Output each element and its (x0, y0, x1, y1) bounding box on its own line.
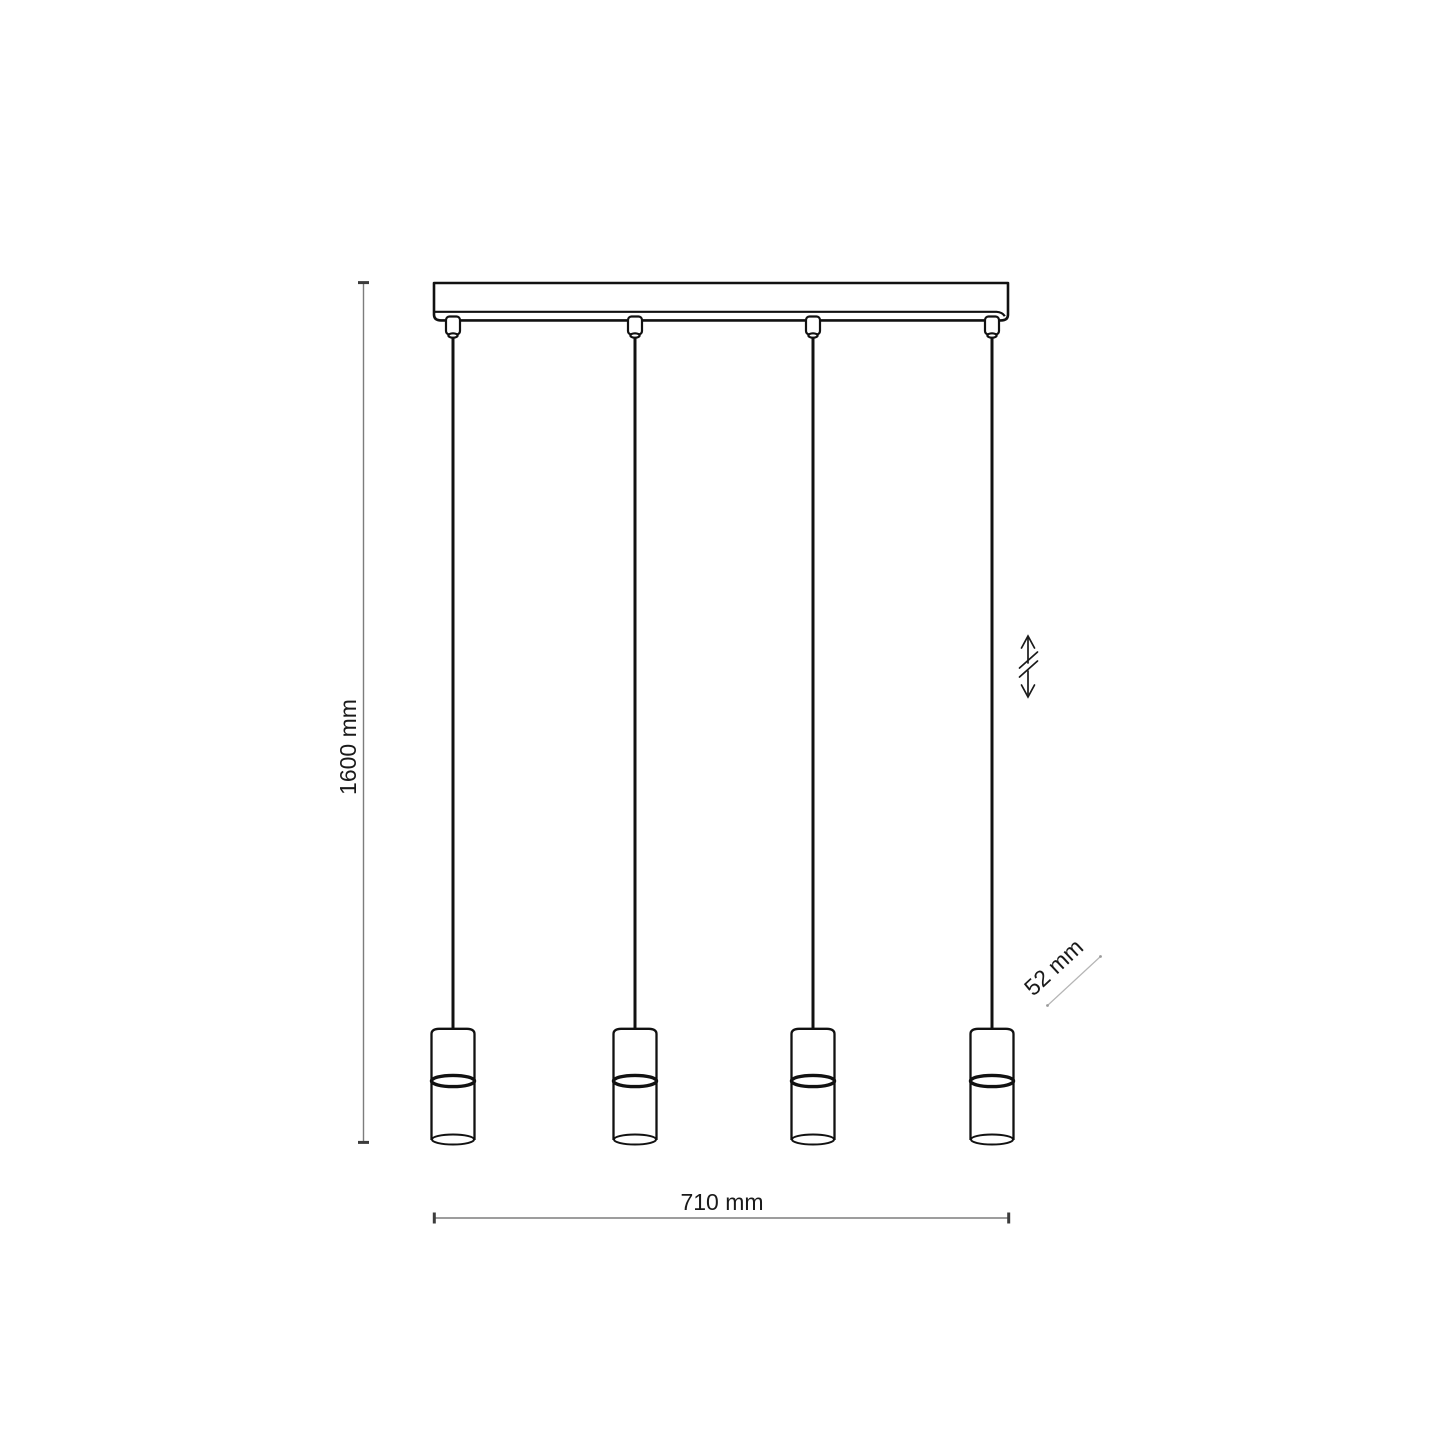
cable-gland-nut (808, 333, 817, 337)
width-dimension: 710 mm (434, 1189, 1008, 1224)
height-dimension-label: 1600 mm (335, 699, 361, 795)
cable-gland (985, 317, 999, 335)
width-dimension-label: 710 mm (680, 1189, 763, 1215)
cable-gland-nut (448, 333, 457, 337)
leader-dot-end (1099, 955, 1102, 958)
shade-diameter-dimension: 52 mm (1019, 934, 1102, 1007)
pendant-3 (792, 317, 835, 1145)
shade-diameter-label: 52 mm (1019, 934, 1088, 1001)
cable-gland-nut (987, 333, 996, 337)
pendant-4 (971, 317, 1014, 1145)
leader-dot-start (1046, 1004, 1049, 1007)
height-dimension: 1600 mm (335, 283, 369, 1143)
cable-gland (806, 317, 820, 335)
diagram-canvas: 1600 mm 710 mm 52 mm (0, 0, 1445, 1445)
cable-gland (446, 317, 460, 335)
pendant-2 (614, 317, 657, 1145)
cable-gland (628, 317, 642, 335)
pendant-lamp-dimension-diagram: 1600 mm 710 mm 52 mm (0, 0, 1445, 1445)
pendant-1 (432, 317, 475, 1145)
canopy-outline (434, 283, 1008, 320)
ceiling-canopy (434, 283, 1008, 320)
cable-gland-nut (630, 333, 639, 337)
height-adjust-icon (1020, 636, 1038, 697)
